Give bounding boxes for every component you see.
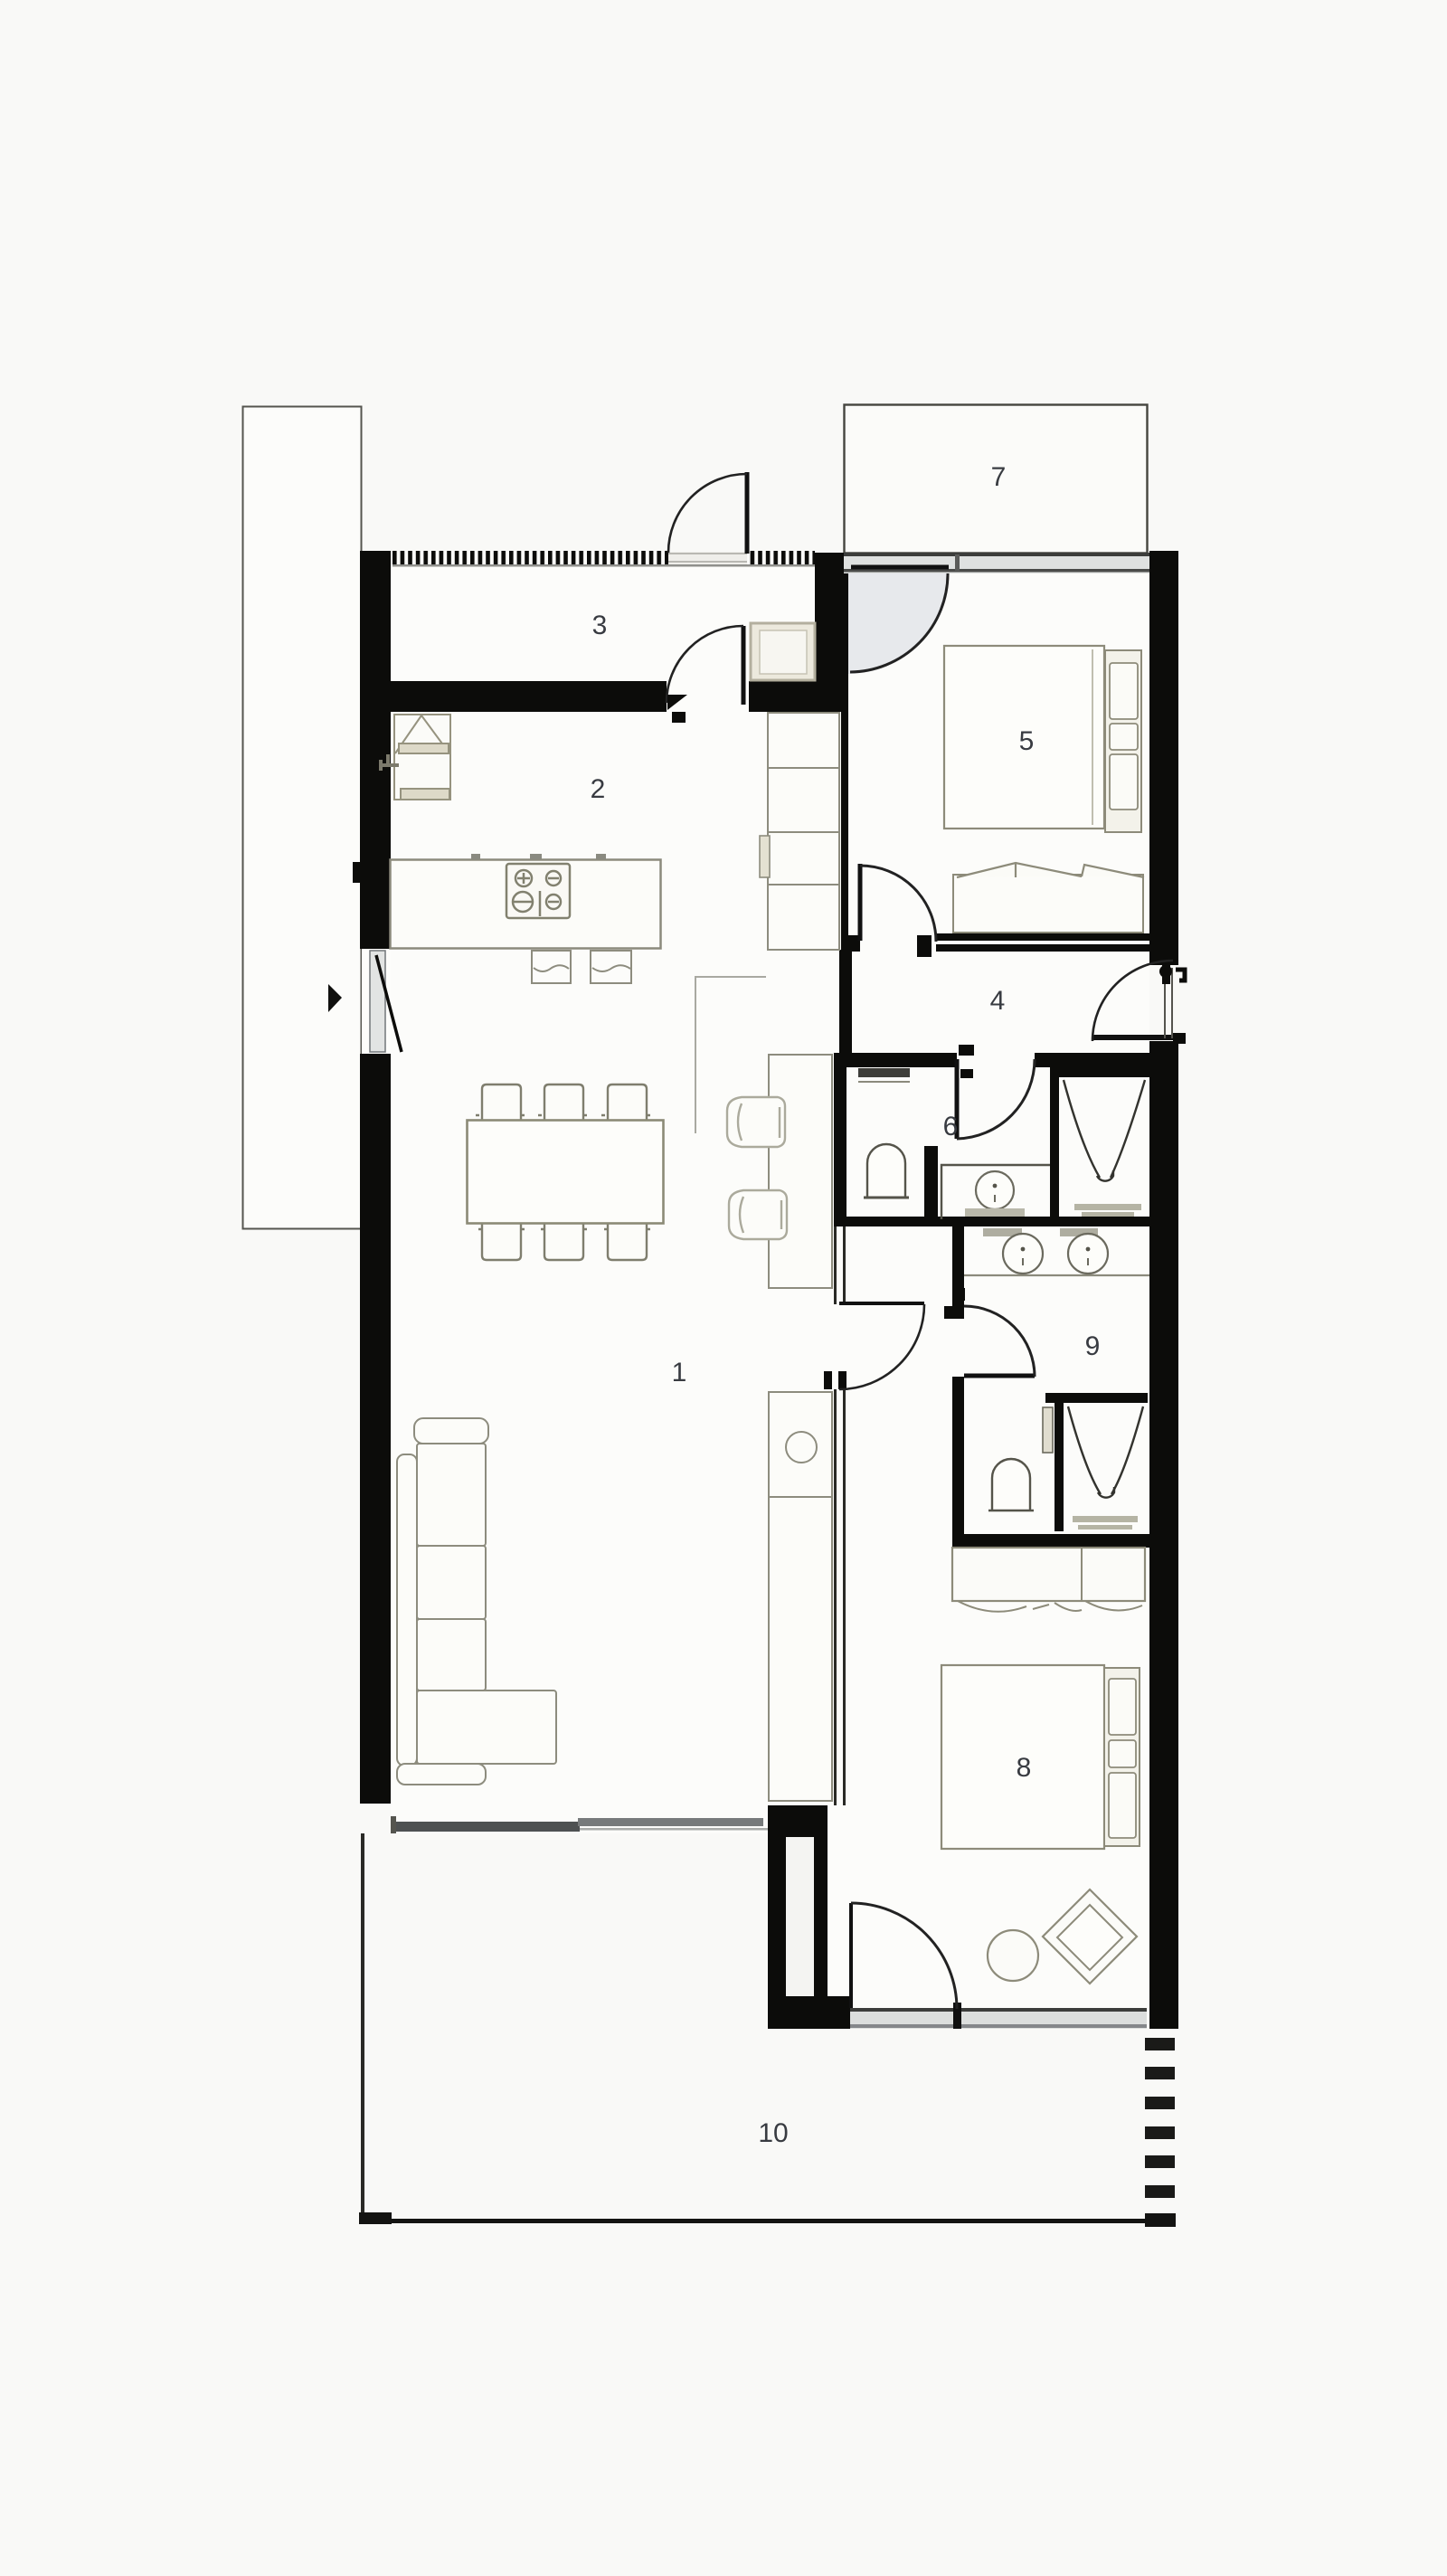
svg-text:1: 1 (672, 1358, 687, 1387)
svg-text:4: 4 (990, 986, 1006, 1016)
svg-text:7: 7 (991, 462, 1007, 492)
svg-text:3: 3 (592, 611, 608, 640)
svg-text:6: 6 (943, 1112, 959, 1141)
svg-text:9: 9 (1085, 1331, 1101, 1361)
svg-text:5: 5 (1019, 726, 1035, 756)
svg-text:10: 10 (758, 2118, 788, 2148)
svg-text:2: 2 (591, 774, 606, 804)
svg-text:8: 8 (1017, 1753, 1032, 1783)
